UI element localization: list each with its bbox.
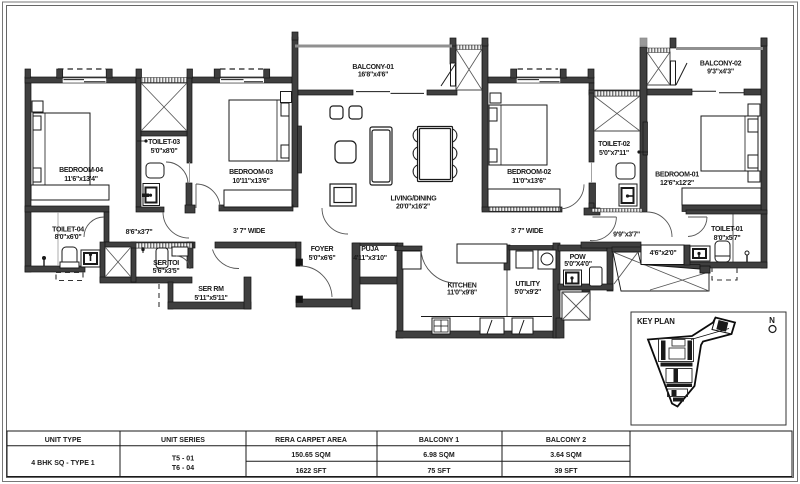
svg-text:BALCONY 2: BALCONY 2 xyxy=(546,437,586,444)
svg-text:UNIT SERIES: UNIT SERIES xyxy=(161,437,205,444)
svg-text:BALCONY-02: BALCONY-02 xyxy=(700,61,742,68)
svg-text:8'0"x6'0": 8'0"x6'0" xyxy=(55,234,82,241)
svg-text:RERA CARPET AREA: RERA CARPET AREA xyxy=(275,437,347,444)
svg-text:11'0"x13'6": 11'0"x13'6" xyxy=(512,178,546,185)
svg-text:5'0"x8'0": 5'0"x8'0" xyxy=(151,148,178,155)
svg-text:BALCONY 1: BALCONY 1 xyxy=(419,437,459,444)
svg-text:11'6"x13'4": 11'6"x13'4" xyxy=(64,176,98,183)
svg-text:KEY PLAN: KEY PLAN xyxy=(637,317,675,326)
svg-text:KITCHEN: KITCHEN xyxy=(447,283,476,290)
svg-text:16'8"x4'6": 16'8"x4'6" xyxy=(358,72,388,79)
svg-text:11'0"x9'8": 11'0"x9'8" xyxy=(447,290,477,297)
svg-text:N: N xyxy=(769,316,775,325)
svg-text:10'11"x13'6": 10'11"x13'6" xyxy=(232,178,269,185)
svg-text:5'0"x6'6": 5'0"x6'6" xyxy=(309,255,336,262)
svg-text:BEDROOM-02: BEDROOM-02 xyxy=(507,169,551,176)
svg-text:9'3"x4'3": 9'3"x4'3" xyxy=(707,69,734,76)
svg-text:BALCONY-01: BALCONY-01 xyxy=(352,64,394,71)
svg-text:1622 SFT: 1622 SFT xyxy=(296,468,327,475)
svg-text:3' 7" WIDE: 3' 7" WIDE xyxy=(511,228,544,235)
svg-text:5'11"x5'11": 5'11"x5'11" xyxy=(194,295,227,302)
svg-text:TOILET-02: TOILET-02 xyxy=(598,141,630,148)
svg-text:T5 - 01: T5 - 01 xyxy=(172,456,194,463)
svg-text:5'6"x3'5": 5'6"x3'5" xyxy=(153,268,180,275)
svg-text:4 BHK SQ - TYPE 1: 4 BHK SQ - TYPE 1 xyxy=(31,460,95,467)
svg-text:FOYER: FOYER xyxy=(311,246,334,253)
svg-text:3.64 SQM: 3.64 SQM xyxy=(550,452,582,459)
svg-text:UTILITY: UTILITY xyxy=(516,281,541,288)
svg-text:T6 - 04: T6 - 04 xyxy=(172,465,194,472)
svg-text:SER TOI: SER TOI xyxy=(153,260,179,267)
svg-text:5'0"x7'11": 5'0"x7'11" xyxy=(599,150,629,157)
svg-text:3' 7" WIDE: 3' 7" WIDE xyxy=(233,228,266,235)
svg-text:9'9"x3'7": 9'9"x3'7" xyxy=(613,232,640,239)
svg-text:8'6"x3'7": 8'6"x3'7" xyxy=(126,229,153,236)
svg-text:6.98 SQM: 6.98 SQM xyxy=(423,452,455,459)
svg-text:12'6"x12'2": 12'6"x12'2" xyxy=(660,180,694,187)
svg-text:4'6"x2'0": 4'6"x2'0" xyxy=(650,250,677,257)
svg-text:39 SFT: 39 SFT xyxy=(555,468,579,475)
svg-text:BEDROOM-01: BEDROOM-01 xyxy=(655,172,699,179)
svg-text:TOILET-04: TOILET-04 xyxy=(52,227,84,234)
svg-text:BEDROOM-03: BEDROOM-03 xyxy=(229,169,273,176)
svg-text:8'0"x5'7": 8'0"x5'7" xyxy=(714,235,741,242)
svg-text:150.65 SQM: 150.65 SQM xyxy=(291,452,330,459)
svg-text:TOILET-01: TOILET-01 xyxy=(711,226,743,233)
svg-text:SER RM: SER RM xyxy=(198,286,224,293)
svg-text:TOILET-03: TOILET-03 xyxy=(148,139,180,146)
svg-text:PUJA: PUJA xyxy=(361,246,379,253)
svg-text:20'0"x16'2": 20'0"x16'2" xyxy=(396,203,430,210)
svg-text:BEDROOM-04: BEDROOM-04 xyxy=(59,167,103,174)
svg-text:5'0"X4'0": 5'0"X4'0" xyxy=(564,261,592,268)
svg-text:LIVING/DINING: LIVING/DINING xyxy=(391,196,438,203)
svg-text:4'11"x3'10": 4'11"x3'10" xyxy=(353,255,387,262)
svg-text:75 SFT: 75 SFT xyxy=(428,468,452,475)
svg-text:5'0"x9'2": 5'0"x9'2" xyxy=(514,289,541,296)
svg-text:UNIT TYPE: UNIT TYPE xyxy=(45,437,82,444)
